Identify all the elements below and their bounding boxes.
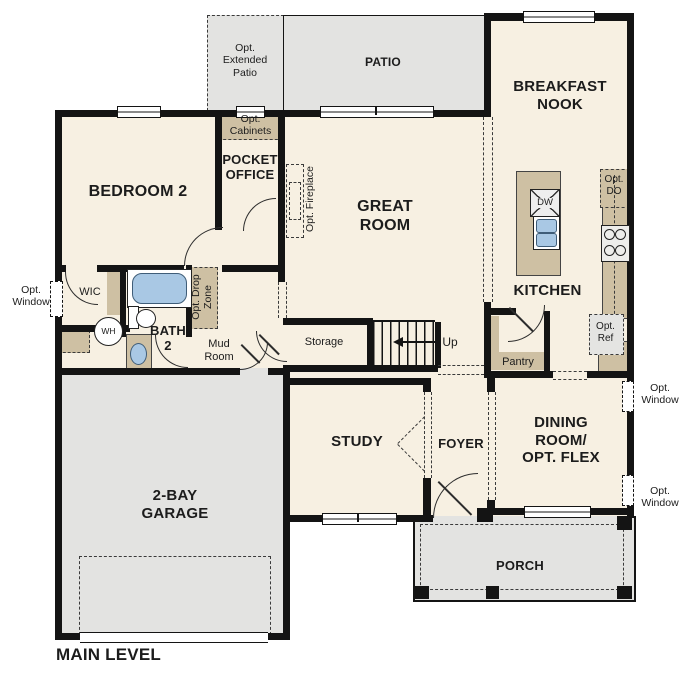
cased-opening-kitchen-dining [553, 371, 587, 380]
wall-hall-bottom [283, 365, 438, 372]
wall-kitchen-bottom-b [587, 371, 634, 378]
label-mud-room: Mud Room [198, 338, 240, 364]
opt-fireplace-inner [289, 182, 301, 220]
opt-wall-greatroom-kitchen [483, 117, 493, 302]
dining-window [524, 506, 591, 518]
label-opt-drop-zone: Opt. Drop Zone [190, 265, 216, 329]
label-kitchen: KITCHEN [505, 282, 590, 300]
label-main-level: MAIN LEVEL [56, 645, 216, 665]
vanity-sink [130, 343, 147, 365]
label-pantry: Pantry [494, 356, 542, 369]
wall-kitchen-bottom-a [484, 371, 553, 378]
wall-foyer-front-stub [423, 515, 433, 522]
water-heater-label: WH [101, 326, 115, 336]
greatroom-patio-window [320, 106, 434, 118]
porch-post-se [617, 586, 632, 599]
porch-post-ne [617, 516, 632, 530]
wall-foyer-right-stub-bottom [487, 500, 495, 515]
label-opt-double-oven: Opt. DO [600, 174, 628, 198]
wall-pantry-right [544, 311, 550, 371]
label-porch: PORCH [492, 558, 548, 573]
label-opt-fireplace: Opt. Fireplace [304, 156, 318, 242]
water-heater: WH [94, 317, 123, 346]
cased-opening-mud-hall [278, 282, 287, 318]
label-bedroom2: BEDROOM 2 [78, 183, 198, 202]
opt-window-dining-upper [622, 381, 634, 412]
wic-shelf [107, 271, 120, 315]
island-sink-bowl-1 [536, 219, 557, 233]
label-bath2: BATH 2 [148, 323, 188, 354]
stairs-arrow-line [403, 341, 436, 343]
label-study: STUDY [322, 433, 392, 451]
label-breakfast-nook: BREAKFAST NOOK [505, 78, 615, 113]
floor-plan: WH DW BEDROOM 2 POCKET OFFICE GREAT ROOM… [0, 0, 687, 687]
nook-window [523, 11, 595, 23]
label-garage: 2-BAY GARAGE [125, 487, 225, 522]
label-foyer: FOYER [435, 436, 487, 451]
garage-apron-outline [79, 556, 271, 635]
island-sink-bowl-2 [536, 233, 557, 247]
label-dining-flex: DINING ROOM/ OPT. FLEX [505, 414, 617, 467]
study-window [322, 513, 397, 525]
wall-foyer-right-stub-top [487, 378, 495, 392]
cased-opening-study-foyer [424, 392, 432, 478]
porch-post-sm [486, 586, 499, 599]
label-storage: Storage [301, 336, 347, 349]
bathtub [132, 273, 187, 304]
wall-right [627, 13, 634, 518]
label-opt-window-left: Opt. Window [8, 284, 54, 309]
label-great-room: GREAT ROOM [345, 198, 425, 236]
label-patio: PATIO [350, 55, 416, 69]
dishwasher: DW [530, 189, 560, 217]
wall-bedroom-bottom-c [222, 265, 283, 272]
burner-1 [604, 229, 615, 240]
wall-left [55, 110, 62, 640]
label-opt-cabinets: Opt. Cabinets [222, 113, 279, 138]
label-opt-refrigerator: Opt. Ref [589, 321, 622, 345]
bedroom-window [117, 106, 161, 118]
porch-inset-outline [420, 524, 624, 590]
dishwasher-label: DW [537, 198, 553, 208]
stairs-treads [373, 322, 435, 366]
wall-kitchen-left [484, 302, 491, 378]
wall-study-top [283, 378, 425, 385]
label-opt-window-dining-upper: Opt. Window [636, 382, 684, 407]
label-pocket-office: POCKET OFFICE [220, 152, 280, 183]
label-opt-extended-patio: Opt. Extended Patio [215, 42, 275, 79]
burner-3 [604, 245, 615, 256]
stairs-arrow-head [393, 337, 403, 347]
wall-storage-top [283, 318, 373, 325]
opt-window-dining-lower [622, 475, 634, 506]
cased-opening-foyer-dining [488, 392, 496, 500]
greatroom-window-mullion [375, 107, 377, 115]
wall-garage-right [283, 368, 290, 640]
wall-bedroom-bottom-a [55, 265, 66, 272]
cased-opening-foyer-hall [438, 365, 484, 375]
label-opt-window-dining-lower: Opt. Window [636, 485, 684, 510]
opt-bench [58, 330, 90, 353]
stairs-landing-edge [373, 320, 435, 322]
wall-foyer-left-stub-top [423, 378, 431, 392]
garage-door [80, 632, 268, 643]
wall-nook-left [484, 15, 491, 117]
wall-pocket-great [278, 112, 285, 282]
burner-2 [615, 229, 626, 240]
burner-4 [615, 245, 626, 256]
porch-post-sw [415, 586, 429, 599]
label-wic: WIC [76, 286, 104, 299]
label-stairs-up: Up [438, 335, 462, 349]
wall-garage-top-a [55, 368, 240, 375]
study-window-mullion [357, 514, 359, 522]
